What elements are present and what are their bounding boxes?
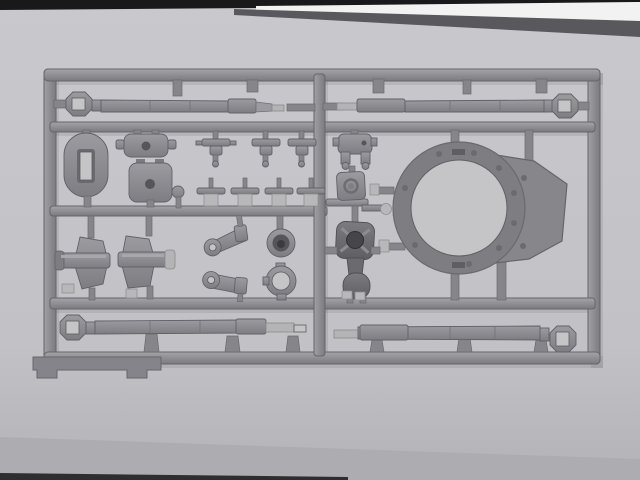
muzzle-opening <box>72 98 85 110</box>
block <box>304 194 318 206</box>
gate <box>173 80 182 96</box>
barrel-taper <box>256 102 272 112</box>
barrel-peg <box>294 325 306 332</box>
stem <box>147 200 154 207</box>
runner-third-left <box>50 206 327 216</box>
ring-opening <box>272 272 290 290</box>
muzzle-collar <box>86 322 95 334</box>
rivet <box>496 165 502 171</box>
rivet <box>471 150 477 156</box>
gate <box>370 340 384 352</box>
cut-gate-block <box>126 289 137 298</box>
pin <box>277 178 281 189</box>
gate <box>525 130 533 162</box>
end-block <box>234 277 247 294</box>
highlight <box>61 255 106 258</box>
pin <box>309 178 313 189</box>
stem <box>277 216 283 229</box>
hub <box>296 146 308 155</box>
barrel-peg <box>337 103 359 110</box>
barrel-sleeve <box>236 319 266 334</box>
hub <box>210 146 222 155</box>
side-gate <box>325 247 337 254</box>
stem <box>352 206 358 224</box>
cut-gate-block <box>370 184 379 195</box>
gate <box>536 79 547 93</box>
foot <box>263 161 269 167</box>
center-hole <box>145 179 155 189</box>
side-gate <box>371 247 380 254</box>
gate <box>287 104 315 111</box>
photo-of-model-kit-sprue <box>0 0 640 480</box>
side-tab <box>333 138 339 146</box>
boss-hole <box>207 276 215 284</box>
block <box>204 194 218 206</box>
barrel-sleeve <box>360 325 408 340</box>
photo-canvas <box>0 0 640 480</box>
bar <box>252 139 280 146</box>
gate <box>286 336 300 352</box>
mount-plate-part <box>129 159 172 207</box>
slot-opening <box>80 152 92 180</box>
rivet <box>466 261 472 267</box>
lug <box>277 294 286 300</box>
gate <box>457 338 472 352</box>
stem <box>146 216 152 236</box>
barrel-shaft <box>101 100 230 112</box>
gate <box>387 243 405 250</box>
stem <box>147 286 153 299</box>
disc <box>381 204 392 215</box>
runner-right <box>588 69 600 364</box>
muzzle-collar <box>92 100 101 111</box>
cut-gate-block <box>355 292 365 300</box>
hole <box>362 141 367 146</box>
stem <box>236 215 242 227</box>
stem <box>88 216 94 238</box>
gate <box>497 262 506 300</box>
bar <box>231 188 259 194</box>
hole-center <box>348 183 354 189</box>
rivet <box>436 151 442 157</box>
center-hole <box>142 142 151 151</box>
bore <box>346 231 364 249</box>
gate <box>54 100 67 108</box>
foot <box>299 161 305 167</box>
barrel-sleeve <box>228 99 256 113</box>
gate <box>534 340 548 352</box>
bar <box>297 188 325 194</box>
rivet <box>402 185 408 191</box>
lug <box>263 277 269 285</box>
side-tab <box>371 138 377 146</box>
muzzle-opening <box>556 332 569 346</box>
ring-notch-bottom <box>452 262 465 268</box>
barrel-shaft <box>405 100 546 112</box>
bar <box>202 139 230 146</box>
rivet <box>521 175 527 181</box>
bar <box>265 188 293 194</box>
pin-head <box>172 186 184 198</box>
barrel-taper-light <box>266 323 294 332</box>
cradle-top-plate <box>335 221 375 260</box>
pin-stem <box>176 197 181 208</box>
axle-cap <box>55 251 64 270</box>
block <box>272 194 286 206</box>
rivet <box>511 220 517 226</box>
rivet <box>511 190 517 196</box>
block <box>238 194 252 206</box>
bar <box>197 188 225 194</box>
ring-opening <box>411 160 507 256</box>
foot <box>362 163 369 170</box>
hub <box>260 146 272 155</box>
cut-gate-block <box>342 291 352 299</box>
side-tab <box>168 140 176 149</box>
runner-middle-vertical <box>314 74 325 356</box>
stem <box>237 293 243 301</box>
cut-gate-block <box>62 284 74 293</box>
gate <box>225 336 240 352</box>
rivet <box>412 242 418 248</box>
end-block <box>234 225 248 243</box>
gate <box>247 80 258 92</box>
muzzle-collar <box>540 328 549 341</box>
highlight <box>122 254 164 257</box>
cup-bore-deep <box>277 240 285 248</box>
barrel-peg <box>272 105 284 111</box>
muzzle-opening <box>558 100 571 112</box>
foot <box>342 163 349 170</box>
gate <box>377 187 394 194</box>
side-tab <box>116 140 124 149</box>
axle-cap-shiny <box>165 250 175 269</box>
barrel-sleeve <box>357 99 405 112</box>
yoke-plate <box>338 134 372 154</box>
stem <box>89 288 95 300</box>
gate <box>463 80 471 94</box>
cut-gate-block <box>379 240 389 252</box>
gate <box>373 79 384 93</box>
neck <box>347 258 364 275</box>
pin <box>209 178 213 189</box>
bar <box>288 139 316 146</box>
pin <box>243 178 247 189</box>
stem <box>84 196 91 207</box>
rivet <box>520 243 526 249</box>
ring-notch-top <box>452 149 465 155</box>
gate <box>144 334 159 352</box>
barrel-peg <box>334 330 358 338</box>
barrel-shaft <box>95 320 238 334</box>
muzzle-opening <box>66 321 79 334</box>
rivet <box>496 245 502 251</box>
foot <box>213 161 219 167</box>
